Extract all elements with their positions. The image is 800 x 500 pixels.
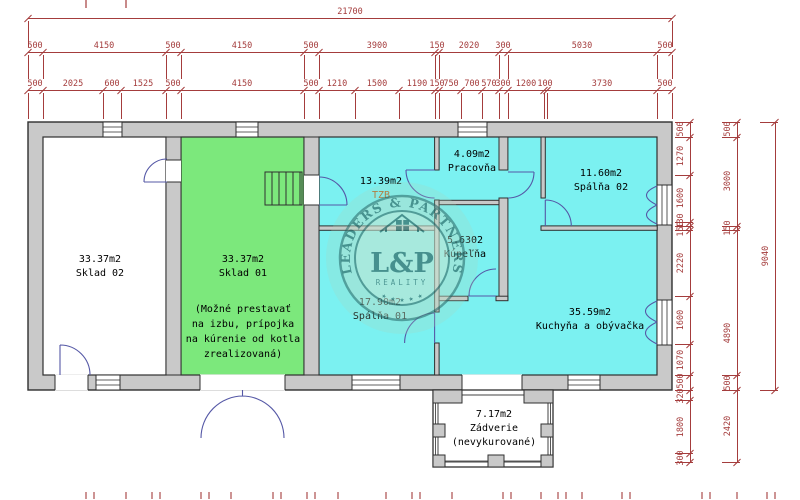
clipped-dimension-tick <box>125 0 127 8</box>
dimension-label: 4890 <box>723 323 733 343</box>
dimension-extension <box>722 137 740 138</box>
dimension-label: 1525 <box>133 79 153 89</box>
dimension-label: 500 <box>657 41 672 51</box>
dimension-extension <box>482 93 483 119</box>
dimension-label: 5030 <box>572 41 592 51</box>
clipped-dimension-tick <box>701 492 703 499</box>
clipped-dimension-tick <box>540 492 542 499</box>
dimension-line <box>775 122 776 390</box>
dimension-label: 4150 <box>232 79 252 89</box>
dimension-extension <box>435 55 436 79</box>
clipped-dimension-tick <box>774 492 776 499</box>
dimension-extension <box>439 55 440 79</box>
dimension-label: 500 <box>723 121 733 136</box>
dimension-label: 1600 <box>676 188 686 208</box>
dimension-extension <box>319 93 320 119</box>
dimension-label: 500 <box>657 79 672 89</box>
floor-plan-stage: 33.37m2 Sklad 02 33.37m2 Sklad 01 (Možné… <box>0 0 800 500</box>
dimension-line <box>28 52 672 53</box>
dimension-label: 1800 <box>676 417 686 437</box>
dimension-label: 2025 <box>63 79 83 89</box>
dimension-label: 2020 <box>459 41 479 51</box>
dimension-label: 700 <box>464 79 479 89</box>
clipped-dimension-tick <box>306 492 308 499</box>
dimension-extension <box>103 93 104 119</box>
dimension-label: 1500 <box>367 79 387 89</box>
clipped-dimension-tick <box>151 492 153 499</box>
dimension-label: 2220 <box>676 253 686 273</box>
dimension-extension <box>675 296 693 297</box>
clipped-dimension-tick <box>272 492 274 499</box>
dimension-extension <box>657 93 658 119</box>
dimension-label: 500 <box>676 121 686 136</box>
dimension-extension <box>166 55 167 79</box>
dimension-extension <box>181 93 182 119</box>
dimension-label: 1200 <box>516 79 536 89</box>
dimension-extension <box>435 93 436 119</box>
dimension-extension <box>166 93 167 119</box>
dimension-extension <box>43 55 44 79</box>
dimension-label: 300 <box>676 450 686 465</box>
dimension-label: 500 <box>27 41 42 51</box>
dimension-label: 500 <box>165 41 180 51</box>
dimension-line <box>737 122 738 462</box>
clipped-dimension-tick <box>502 492 504 499</box>
dimension-label: 4150 <box>94 41 114 51</box>
clipped-dimension-tick <box>125 492 127 499</box>
clipped-dimension-tick <box>385 492 387 499</box>
dimension-label: 300 <box>495 79 510 89</box>
clipped-dimension-tick <box>621 492 623 499</box>
dimension-extension <box>319 55 320 79</box>
dimension-extension <box>28 55 29 79</box>
dimension-label: 21700 <box>337 7 363 17</box>
dimension-label: 500 <box>723 375 733 390</box>
dimension-label: 1270 <box>676 146 686 166</box>
clipped-dimension-tick <box>736 492 738 499</box>
dimension-extension <box>121 93 122 119</box>
dimension-extension <box>544 93 545 119</box>
watermark-badge: LEADERS & PARTNERS ★ ★ ★ ★ ★ L&P REALITY <box>322 178 482 338</box>
dimension-extension <box>508 55 509 79</box>
dimension-extension <box>439 93 440 119</box>
dimension-extension <box>304 55 305 79</box>
dimension-extension <box>355 93 356 119</box>
dimension-label: 1190 <box>407 79 427 89</box>
dimension-extension <box>399 93 400 119</box>
dimension-line <box>28 90 672 91</box>
clipped-dimension-tick <box>85 0 87 8</box>
clipped-dimension-tick <box>314 492 316 499</box>
dimension-extension <box>657 55 658 79</box>
clipped-dimension-tick <box>581 492 583 499</box>
dimension-label: 100 <box>537 79 552 89</box>
dimension-label: 150 <box>676 221 686 236</box>
dimension-extension <box>760 390 778 391</box>
dimension-extension <box>508 93 509 119</box>
dimension-extension <box>28 93 29 119</box>
dimension-label: 500 <box>303 79 318 89</box>
dimension-extension <box>760 122 778 123</box>
dimension-label: 500 <box>27 79 42 89</box>
clipped-dimension-tick <box>419 492 421 499</box>
clipped-dimension-tick <box>93 492 95 499</box>
clipped-dimension-tick <box>230 492 232 499</box>
clipped-dimension-tick <box>766 492 768 499</box>
clipped-dimension-tick <box>411 492 413 499</box>
dimension-label: 3900 <box>367 41 387 51</box>
dimension-label: 300 <box>495 41 510 51</box>
clipped-dimension-tick <box>709 492 711 499</box>
clipped-dimension-tick <box>280 492 282 499</box>
dimension-extension <box>43 93 44 119</box>
dimension-extension <box>722 462 740 463</box>
clipped-dimension-tick <box>85 492 87 499</box>
dimension-label: 3730 <box>592 79 612 89</box>
clipped-dimension-tick <box>200 492 202 499</box>
dimension-extension <box>181 55 182 79</box>
clipped-dimension-tick <box>557 492 559 499</box>
dimension-line <box>28 18 672 19</box>
clipped-dimension-tick <box>565 492 567 499</box>
watermark-monogram: L&P <box>370 248 434 279</box>
dimension-label: 500 <box>676 373 686 388</box>
dimension-label: 9040 <box>761 246 771 266</box>
clipped-dimension-tick <box>451 492 453 499</box>
clipped-dimension-tick <box>208 492 210 499</box>
dimension-extension <box>499 93 500 119</box>
dimension-label: 150 <box>723 220 733 235</box>
dimension-extension <box>499 55 500 79</box>
clipped-dimension-tick <box>159 492 161 499</box>
dimension-extension <box>304 93 305 119</box>
clipped-dimension-tick <box>337 492 339 499</box>
dimension-label: 3000 <box>723 171 733 191</box>
watermark-subtitle: REALITY <box>376 278 429 287</box>
dimension-label: 500 <box>303 41 318 51</box>
dimension-label: 1070 <box>676 350 686 370</box>
dimension-label: 600 <box>104 79 119 89</box>
dimension-label: 500 <box>165 79 180 89</box>
dimension-label: 1210 <box>327 79 347 89</box>
dimension-extension <box>672 93 673 119</box>
dimension-label: 4150 <box>232 41 252 51</box>
dimension-extension <box>675 175 693 176</box>
clipped-dimension-tick <box>629 492 631 499</box>
dimension-label: 750 <box>443 79 458 89</box>
dimension-extension <box>461 93 462 119</box>
dimension-label: 320 <box>676 388 686 403</box>
dimension-extension <box>547 93 548 119</box>
clipped-dimension-tick <box>510 492 512 499</box>
dimension-label: 2420 <box>723 416 733 436</box>
dimension-extension <box>675 137 693 138</box>
dimension-extension <box>675 344 693 345</box>
dimension-label: 1600 <box>676 310 686 330</box>
dimension-label: 150 <box>429 41 444 51</box>
dimension-extension <box>672 55 673 79</box>
